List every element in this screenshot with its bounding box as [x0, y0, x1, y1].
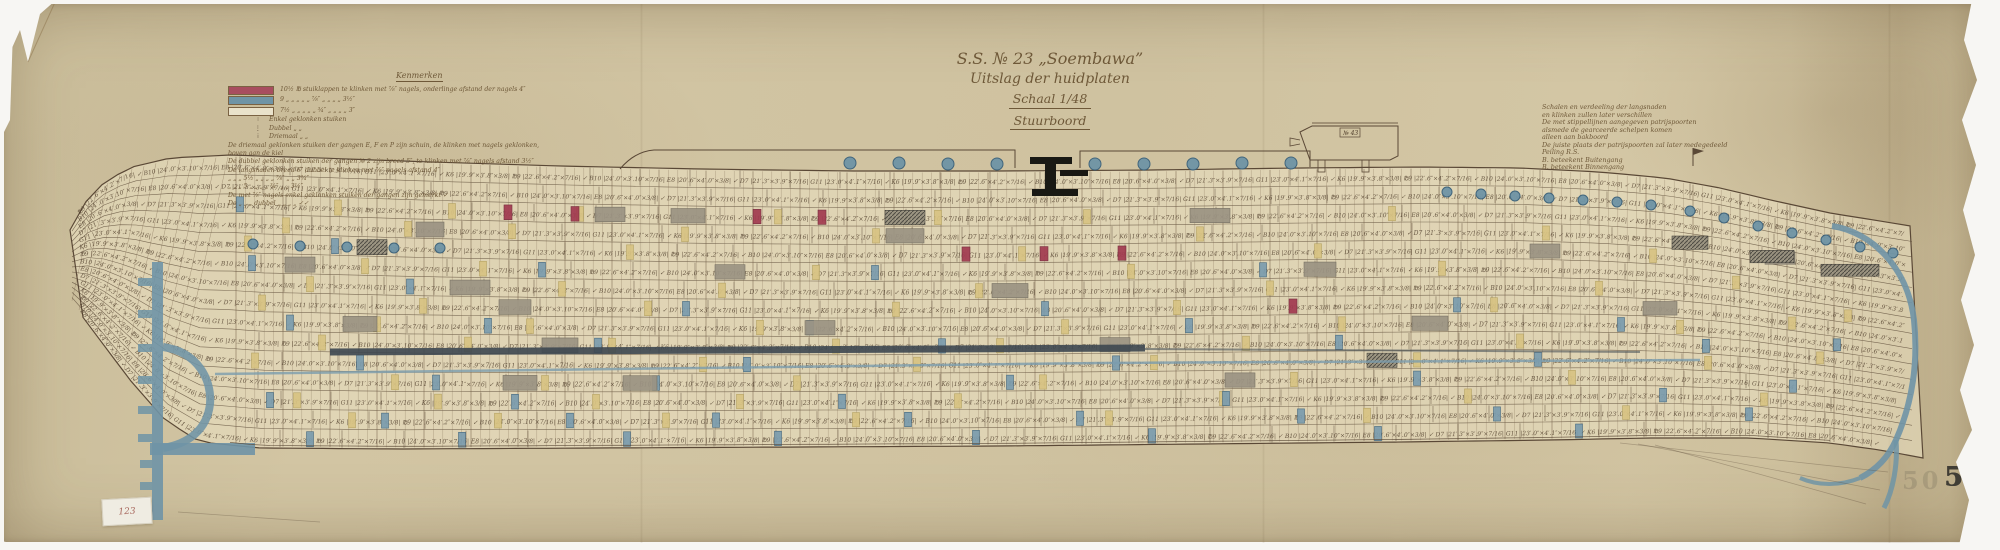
sheet-number-ghost-stamp: 50	[1902, 466, 1941, 495]
legend-swatch-row: 10½ ℔ stuiklappen te klinken met ⅞″ nage…	[228, 86, 698, 95]
legend-swatch-text: 7½ „ „ „ „ „ ¾″ „ „ „ „ 3″	[280, 108, 355, 115]
legend-block: Kenmerken 10½ ℔ stuiklappen te klinken m…	[228, 72, 698, 208]
legend-color-swatch	[228, 96, 274, 105]
legend-note-line: „ „ „ 5 „ „ „ „ ¾″ „ „ 3½″	[228, 184, 698, 191]
legend-swatch-rows: 10½ ℔ stuiklappen te klinken met ⅞″ nage…	[228, 86, 698, 116]
legend-rivet-text: Enkel geklonken stuiken	[269, 117, 346, 124]
legend-notes: De driemaal geklonken stuiken der gangen…	[228, 143, 698, 208]
note-line: B. beteekent Binnengang	[1542, 164, 1812, 172]
rivet-glyph: ∶	[250, 117, 266, 124]
legend-note-line: De driemaal geklonken stuiken der gangen…	[228, 143, 698, 150]
legend-heading: Kenmerken	[396, 72, 443, 82]
legend-color-swatch	[228, 107, 274, 116]
legend-color-swatch	[228, 86, 274, 95]
legend-note-line: De langsnaden breed 6″ dubbel te klinken…	[228, 168, 698, 175]
legend-swatch-text: 9 „ „ „ „ „ ⅞″ „ „ „ „ 3½″	[280, 97, 355, 104]
inset-detail-label: № 43	[1342, 130, 1358, 137]
rivet-glyph: ⋮	[250, 126, 266, 133]
ship-name-title: S.S. № 23 „Soembawa”	[860, 50, 1240, 69]
legend-swatch-row: 9 „ „ „ „ „ ⅞″ „ „ „ „ 3½″	[228, 96, 698, 105]
legend-note-line: boven aan de kiel	[228, 151, 698, 158]
scale-label: Schaal 1/48	[1009, 92, 1092, 108]
legend-note-line: „ „ „ 5½ „ „ „ „ ⅞″ „ „ 3¾″	[228, 176, 698, 183]
title-block: S.S. № 23 „Soembawa” Uitslag der huidpla…	[860, 48, 1240, 130]
side-label: Stuurboord	[1010, 114, 1091, 130]
legend-swatch-row: 7½ „ „ „ „ „ ¾″ „ „ „ „ 3″	[228, 107, 698, 116]
legend-note-line: De met ⅞″ nagels enkel geklonken stuiken…	[228, 193, 698, 200]
legend-rivet-rows: ∶Enkel geklonken stuiken⋮Dubbel „ „⁞Drie…	[228, 117, 698, 141]
inventory-number: 123	[118, 506, 136, 517]
rivet-glyph: ⁞	[250, 134, 266, 141]
drawing-title: Uitslag der huidplaten	[860, 71, 1240, 88]
legend-swatch-text: 10½ ℔ stuiklappen te klinken met ⅞″ nage…	[280, 87, 526, 94]
legend-rivet-text: Driemaal „ „	[269, 134, 308, 141]
inventory-sticker: 123	[101, 497, 152, 527]
legend-note-line: De „ „ „ dubbel „ „ „ „ ✓✓	[228, 201, 698, 208]
scanned-sheet: ℔9 |22′.6″×4′.2″×7/16| ✓ B10 |24′.0″×3′.…	[0, 0, 2000, 550]
notes-right-block: Schalen en verdeeling der langsnadenen k…	[1542, 104, 1812, 172]
sheet-number-stamp: 50	[1944, 462, 1988, 493]
legend-rivet-row: ∶Enkel geklonken stuiken	[250, 117, 698, 124]
note-line: De juiste plaats der patrijspoorten zal …	[1542, 142, 1812, 150]
legend-rivet-row: ⁞Driemaal „ „	[250, 134, 698, 141]
legend-rivet-row: ⋮Dubbel „ „	[250, 126, 698, 133]
inset-detail: № 43	[1290, 123, 1398, 172]
bulwark-rails	[620, 150, 1310, 169]
legend-note-line: De dubbel geklonken stuiken der gangen №…	[228, 159, 698, 166]
legend-rivet-text: Dubbel „ „	[269, 126, 302, 133]
